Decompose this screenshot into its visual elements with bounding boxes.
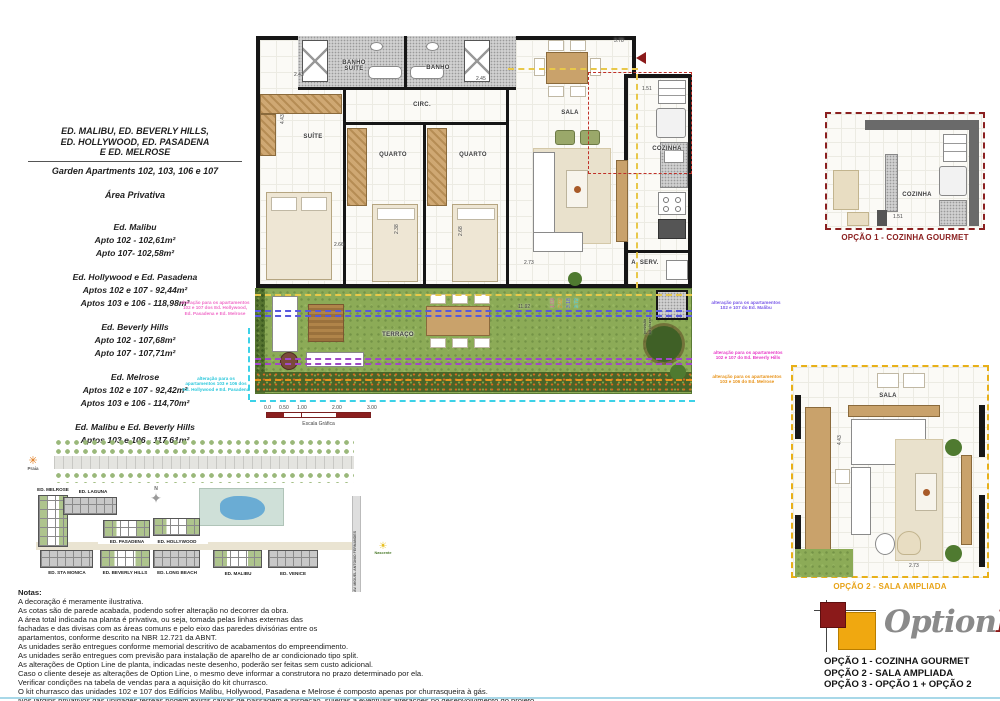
note-line: As unidades serão entregues com previsão… xyxy=(18,651,758,660)
armchair xyxy=(555,130,575,145)
info-title-line1: ED. MALIBU, ED. BEVERLY HILLS, xyxy=(16,126,254,137)
scale-tick: 1.00 xyxy=(297,405,307,411)
opt2-grass-patch xyxy=(795,549,853,577)
opt2-wall xyxy=(979,405,985,457)
pillow xyxy=(301,197,327,211)
options-list-item-2: OPÇÃO 2 - SALA AMPLIADA xyxy=(824,668,999,680)
pool-courtyard xyxy=(199,488,284,526)
opt2-dim-a: 4.43 xyxy=(837,435,843,445)
building-label-laguna: ED. LAGUNA xyxy=(69,489,117,494)
annotation-melrose: alteração para os apartamentos 103 e 106… xyxy=(698,374,796,385)
annotation-hollywood-pasadena-melrose: alteração para os apartamentos 102 e 107… xyxy=(176,300,254,316)
building-block-beverly-hills xyxy=(100,550,150,568)
building-label-hollywood: ED. HOLLYWOOD xyxy=(146,539,208,544)
opt2-wall xyxy=(795,395,801,439)
praia-marker: ✳ Praia xyxy=(20,456,46,471)
opt2-plant xyxy=(945,545,962,562)
site-plan: ✳ Praia N ✦ ED. MELROSE ED. LAGUNA ED. P… xyxy=(14,438,404,592)
dim: 2.38 xyxy=(394,224,400,234)
opt1-sofa-corner2 xyxy=(847,212,869,226)
option1-plan: COZINHA 1.51 xyxy=(825,112,985,230)
logo-wordmark: OptionLine xyxy=(884,604,1000,640)
wall-suite-quarto1 xyxy=(343,90,346,288)
scale-segment xyxy=(336,413,370,417)
logo-text-option: Option xyxy=(884,604,996,640)
entrance-arrow-icon xyxy=(636,52,646,64)
scale-tick: 2.00 xyxy=(332,405,342,411)
room-label-suite: SUÍTE xyxy=(288,134,338,140)
compass: N ✦ xyxy=(144,486,168,504)
floorplan-sheet: ED. MALIBU, ED. BEVERLY HILLS, ED. HOLLY… xyxy=(0,0,1000,701)
terrace-flowerbed xyxy=(255,372,692,392)
logo-red-square-icon xyxy=(820,602,846,628)
opt2-side-table xyxy=(875,533,895,555)
sink-1 xyxy=(370,42,383,51)
dim: 2.45 xyxy=(476,76,486,82)
group-3-line1: Aptos 103 e 106 - 114,70m² xyxy=(16,398,254,408)
tree-row xyxy=(54,438,354,454)
dim: 2.68 xyxy=(458,226,464,236)
group-1-line0: Aptos 102 e 107 - 92,44m² xyxy=(16,285,254,295)
quarto1-wardrobe xyxy=(347,128,367,206)
building-label-malibu: ED. MALIBU xyxy=(210,571,266,576)
scale-segment xyxy=(301,413,336,417)
divider xyxy=(28,161,242,162)
opt2-sofa-cushions xyxy=(851,467,871,535)
dining-chair xyxy=(534,58,545,76)
sofa-chaise xyxy=(533,232,583,252)
option2-dash-top xyxy=(508,68,638,70)
quarto1-bed xyxy=(372,204,418,282)
suite-wardrobe-top xyxy=(260,94,342,114)
group-2-line1: Apto 107 - 107,71m² xyxy=(16,348,254,358)
building-block-sta-monica xyxy=(40,550,93,568)
group-2-name: Ed. Beverly Hills xyxy=(16,322,254,332)
suite-bed xyxy=(266,192,332,280)
dim: 2.73 xyxy=(524,260,534,266)
coffee-table xyxy=(566,170,588,208)
opt2-lounge-chair xyxy=(903,373,925,388)
closet-left xyxy=(302,40,328,82)
option1-caption: OPÇÃO 1 - COZINHA GOURMET xyxy=(818,233,992,242)
building-label-venice: ED. VENICE xyxy=(264,571,322,576)
round-planter xyxy=(280,352,298,370)
info-subtitle: Garden Apartments 102, 103, 106 e 107 xyxy=(16,166,254,176)
info-title-line3: E ED. MELROSE xyxy=(16,147,254,158)
option1-dash-rect xyxy=(588,72,692,174)
plant xyxy=(568,272,582,286)
opt2-desk-chair xyxy=(835,469,850,484)
opt2-lounge-chair xyxy=(877,373,899,388)
dim: 2.66 xyxy=(334,242,344,248)
group-4-name: Ed. Malibu e Ed. Beverly Hills xyxy=(16,422,254,432)
note-line: As unidades serão entregues conforme mem… xyxy=(18,642,758,651)
street-label: AV. MIGUEL ANTONIO FERNANDES xyxy=(353,528,357,592)
building-block-pasadena xyxy=(103,520,150,538)
nascente-marker: ☀ Nascente xyxy=(368,542,398,555)
note-line: fachadas e das divisas com as áreas comu… xyxy=(18,624,758,633)
pillow xyxy=(271,197,297,211)
option2-plan: SALA 4.43 2.73 xyxy=(791,365,989,578)
building-label-long-beach: ED. LONG BEACH xyxy=(148,570,206,575)
opt1-wall-stub xyxy=(877,210,887,226)
room-label-terraco: TERRAÇO xyxy=(372,332,424,338)
room-label-aserv: A. SERV. xyxy=(626,260,664,266)
dim: 11.92 xyxy=(518,304,530,310)
scale-tick: 0.0 xyxy=(264,405,271,411)
compass-rose-icon: ✦ xyxy=(144,492,168,504)
note-line: O kit churrasco das unidades 102 e 107 d… xyxy=(18,687,758,696)
terrace-chair xyxy=(474,338,490,348)
suite-wardrobe-side xyxy=(260,114,276,156)
opt1-wall-top xyxy=(865,120,979,130)
group-2-line0: Apto 102 - 107,68m² xyxy=(16,335,254,345)
opt2-room-label: SALA xyxy=(865,393,911,399)
stove xyxy=(658,192,686,215)
opt1-island-counter xyxy=(885,154,898,212)
note-line: A área total indicada na planta é privat… xyxy=(18,615,758,624)
beverly-line-2 xyxy=(255,363,692,365)
opt2-sofa-back xyxy=(848,405,940,417)
info-title-line2: ED. HOLLYWOOD, ED. PASADENA xyxy=(16,137,254,148)
opt2-coffee-table xyxy=(915,473,937,511)
beverly-line-1 xyxy=(255,358,692,360)
dim: 2.92 xyxy=(558,298,564,308)
annotation-beverly-hills: alteração para os apartamentos 102 e 107… xyxy=(700,350,796,361)
opt2-plant xyxy=(945,439,962,456)
options-list-item-3: OPÇÃO 3 - OPÇÃO 1 + OPÇÃO 2 xyxy=(824,679,999,691)
scale-tick: 0.50 xyxy=(279,405,289,411)
building-block-laguna xyxy=(63,497,117,515)
wall-quarto1-quarto2 xyxy=(423,124,426,288)
notes-block: Notas: A decoração é meramente ilustrati… xyxy=(18,588,758,701)
burner xyxy=(663,197,669,203)
dim: 1.03 xyxy=(550,298,556,308)
opt1-wall-right xyxy=(969,120,979,226)
laundry-tank xyxy=(666,260,688,280)
dim: 1.51 xyxy=(642,86,652,92)
note-line: As alterações de Option Line de planta, … xyxy=(18,660,758,669)
building-label-sta-monica: ED. STA MONICA xyxy=(36,570,98,575)
room-label-quarto1: QUARTO xyxy=(368,152,418,158)
oven xyxy=(658,219,686,239)
appliance-line xyxy=(944,151,966,152)
opt1-dim: 1.51 xyxy=(893,214,903,220)
options-list-item-1: OPÇÃO 1 - COZINHA GOURMET xyxy=(824,656,999,668)
opt2-wall xyxy=(979,495,985,567)
info-section: Área Privativa xyxy=(16,190,254,200)
annotation-hollywood-pasadena: alteração para os apartamentos 103 e 106… xyxy=(178,376,254,392)
wall-circ xyxy=(343,122,509,125)
note-line: Caso o cliente deseje as alterações de O… xyxy=(18,669,758,678)
burner xyxy=(675,197,681,203)
sink-2 xyxy=(426,42,439,51)
praia-star-icon: ✳ xyxy=(20,456,46,466)
burner xyxy=(675,206,681,212)
room-label-banho: BANHO xyxy=(418,65,458,71)
scale-bar-segments xyxy=(266,412,371,418)
dining-chair xyxy=(570,86,586,97)
room-label-banho-suite: BANHO SUÍTE xyxy=(332,60,376,72)
kit-churrasco-note: previsão kit churrasco xyxy=(642,290,652,334)
note-line: A decoração é meramente ilustrativa. xyxy=(18,597,758,606)
lounger xyxy=(272,296,298,352)
nascente-label: Nascente xyxy=(368,551,398,555)
page-edge xyxy=(0,697,1000,699)
annotation-malibu: alteração para os apartamentos 102 e 107… xyxy=(700,300,792,311)
nascente-sun-icon: ☀ xyxy=(368,542,398,551)
pillow xyxy=(457,208,495,220)
scale-label: Escala Gráfica xyxy=(266,421,371,427)
opt1-counter xyxy=(939,200,967,226)
pool xyxy=(220,496,265,520)
table-decor xyxy=(923,489,930,496)
dim: 3.78 xyxy=(614,38,624,44)
note-line: Verificar condições na tabela de vendas … xyxy=(18,678,758,687)
opt1-sofa-corner xyxy=(833,170,859,210)
building-block-long-beach xyxy=(153,550,200,568)
quarto2-wardrobe xyxy=(427,128,447,206)
info-panel: ED. MALIBU, ED. BEVERLY HILLS, ED. HOLLY… xyxy=(16,126,254,445)
note-line: As cotas são de parede acabada, podendo … xyxy=(18,606,758,615)
group-0-name: Ed. Malibu xyxy=(16,222,254,232)
malibu-line-1 xyxy=(255,310,692,312)
opt1-appliance-stack xyxy=(943,134,967,162)
scale-tick: 3.00 xyxy=(367,405,377,411)
main-floor-plan: BANHO SUÍTE BANHO SUÍTE QUARTO QUARTO CI… xyxy=(250,28,695,404)
group-0-line0: Apto 102 - 102,61m² xyxy=(16,235,254,245)
praia-label: Praia xyxy=(20,466,46,471)
group-0-line1: Apto 107- 102,58m² xyxy=(16,248,254,258)
building-block-hollywood xyxy=(153,518,200,536)
option2-dash-terrace xyxy=(255,294,692,296)
burner xyxy=(663,206,669,212)
appliance-line xyxy=(944,143,966,144)
dim: 3.72 xyxy=(574,298,580,308)
optionline-logo: OptionLine xyxy=(812,600,992,654)
dim: 3.18 xyxy=(566,298,572,308)
terrace-chair xyxy=(452,338,468,348)
building-block-venice xyxy=(268,550,318,568)
scale-segment xyxy=(267,413,284,417)
dining-chair xyxy=(548,86,564,97)
sofa xyxy=(533,152,555,236)
hollywood-pasadena-line xyxy=(250,400,695,402)
opt1-room-label: COZINHA xyxy=(895,192,939,198)
logo-text-line: Line xyxy=(996,604,1000,640)
dining-chair xyxy=(548,40,564,51)
options-list: OPÇÃO 1 - COZINHA GOURMET OPÇÃO 2 - SALA… xyxy=(824,656,999,691)
bush-small xyxy=(670,364,686,380)
group-1-name: Ed. Hollywood e Ed. Pasadena xyxy=(16,272,254,282)
opt2-tv-console xyxy=(961,455,972,545)
room-label-circ: CIRC. xyxy=(402,102,442,108)
scale-segment xyxy=(284,413,301,417)
melrose-line xyxy=(255,379,692,381)
bath-divider-wall xyxy=(404,36,407,90)
opt1-fridge xyxy=(939,166,967,196)
room-label-quarto2: QUARTO xyxy=(448,152,498,158)
dining-chair xyxy=(570,40,586,51)
room-label-sala: SALA xyxy=(548,110,592,116)
quarto2-bed xyxy=(452,204,498,282)
dim: 4.43 xyxy=(280,114,286,124)
malibu-line-2 xyxy=(255,315,692,317)
wall-quarto2-sala xyxy=(506,90,509,288)
terrace-chair xyxy=(430,338,446,348)
opt2-desk-strip xyxy=(805,407,831,555)
building-block-malibu xyxy=(213,550,262,568)
scale-bar: 0.0 0.50 1.00 2.00 3.00 Escala Gráfica xyxy=(266,405,386,431)
parking-strip xyxy=(54,456,354,469)
note-line: apartamentos, conforme descrito na NBR 1… xyxy=(18,633,758,642)
table-decor xyxy=(574,186,581,193)
opt2-dim-b: 2.73 xyxy=(909,563,919,569)
tree-row xyxy=(54,471,354,483)
notes-heading: Notas: xyxy=(18,588,758,597)
dim: 2.43 xyxy=(294,72,304,78)
option2-caption: OPÇÃO 2 - SALA AMPLIADA xyxy=(791,582,989,591)
pillow xyxy=(377,208,415,220)
opt2-armchair xyxy=(897,531,921,555)
